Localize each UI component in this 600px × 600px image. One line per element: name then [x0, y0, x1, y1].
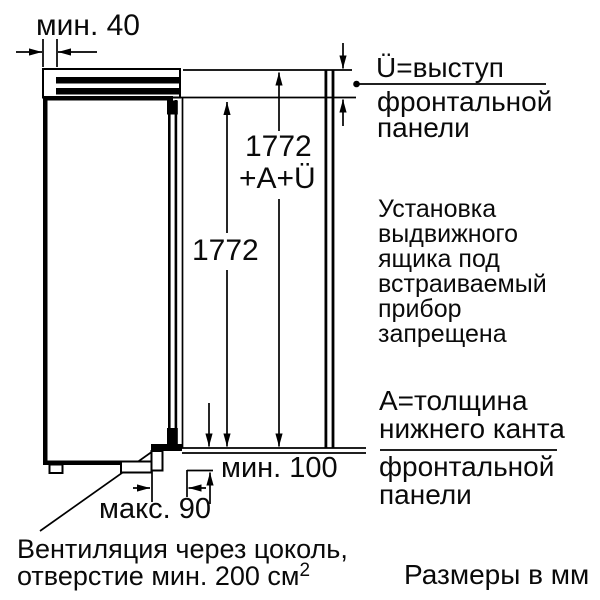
bottom-gap-dimension-label: мин. 100 [221, 453, 338, 483]
plinth-recess-dimension-label: макс. 90 [99, 494, 211, 524]
ventilation-note-line-2: отверстие мин. 200 см2 [17, 562, 310, 590]
appliance-door-top-cap [167, 101, 178, 115]
plinth-foot-box [121, 462, 152, 473]
dimension-lines [16, 43, 343, 504]
panel-height-dimension-value: 1772 [245, 131, 312, 163]
top-gap-dimension-label: мин. 40 [36, 10, 140, 42]
niche-height-dimension-label: 1772 [192, 235, 259, 267]
drawer-warning-line-4: встраиваемый [378, 272, 547, 297]
cabinet-foot-left [50, 465, 63, 474]
overhang-leader-dot [353, 81, 360, 88]
appliance-door-line-outer [168, 100, 171, 432]
panel-height-dimension-suffix: +A+Ü [239, 163, 316, 195]
plinth-bracket [152, 451, 163, 471]
top-vent-slot-1 [56, 77, 179, 84]
ventilation-note-text: отверстие мин. 200 см [17, 561, 300, 591]
front-panel-line-back [325, 70, 328, 449]
niche-top-wall [43, 96, 173, 101]
bottom-ledge [151, 444, 182, 451]
bottom-edge-note-line-4: панели [379, 480, 472, 509]
top-vent-slot-2 [56, 88, 179, 95]
units-note: Размеры в мм [404, 560, 589, 589]
cabinet-left-wall [43, 96, 48, 465]
bottom-edge-note-line-1: A=толщина [379, 386, 528, 415]
drawer-warning-line-6: запрещена [378, 322, 547, 347]
installation-diagram: мин. 40 Ü=выступ фронтальной панели 1772… [0, 0, 600, 600]
drawer-warning-line-5: прибор [378, 297, 547, 322]
drawer-warning-note: Установка выдвижного ящика под встраивае… [378, 197, 547, 347]
appliance-door-line-inner [175, 100, 178, 432]
drawer-warning-line-3: ящика под [378, 247, 547, 272]
overhang-note-line-1: Ü=выступ [376, 53, 504, 82]
bottom-edge-note-line-2: нижнего канта [379, 414, 565, 443]
overhang-note-line-3: панели [377, 113, 470, 142]
drawer-warning-line-2: выдвижного [378, 222, 547, 247]
drawer-warning-line-1: Установка [378, 197, 547, 222]
front-panel-line-front [332, 70, 335, 449]
appliance-door-bottom-cap [167, 428, 178, 445]
ventilation-note-line-1: Вентиляция через цоколь, [17, 535, 348, 563]
ventilation-note-superscript: 2 [300, 560, 311, 581]
bottom-edge-note-line-3: фронтальной [379, 452, 554, 481]
